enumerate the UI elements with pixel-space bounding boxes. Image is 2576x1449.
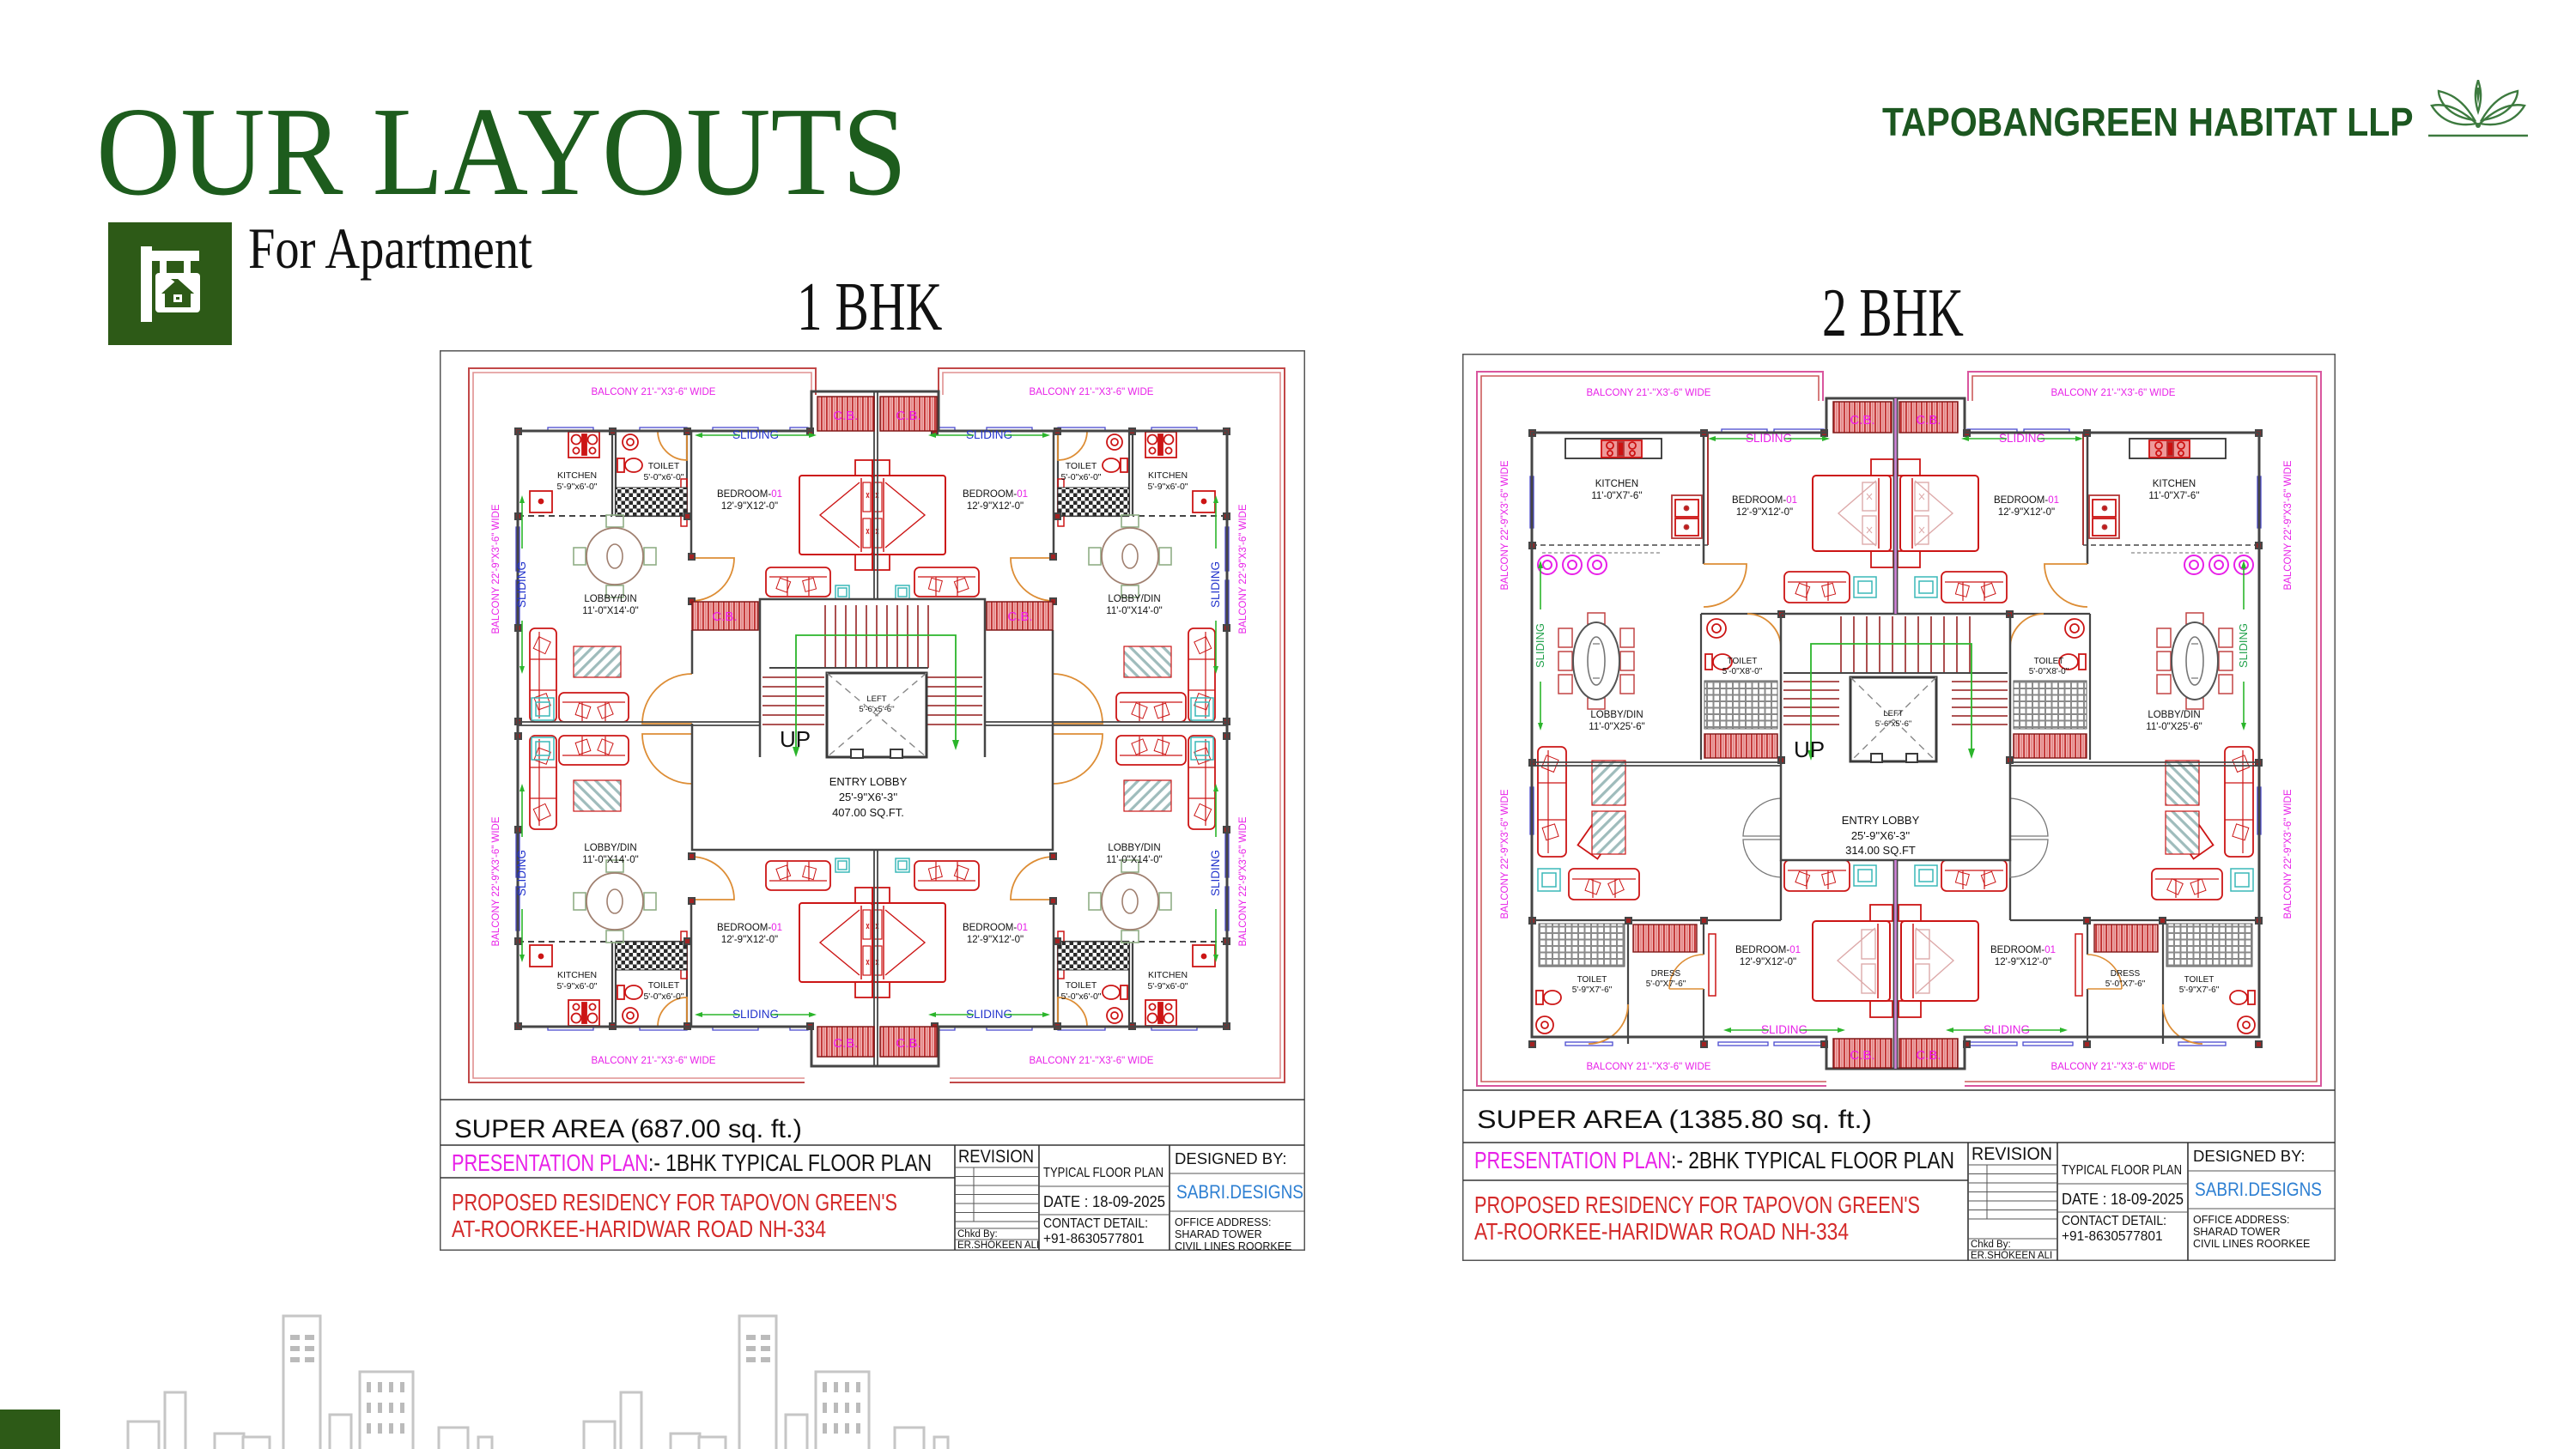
- svg-text:12'-9"X12'-0": 12'-9"X12'-0": [721, 501, 778, 512]
- svg-text:SLIDING: SLIDING: [2237, 623, 2250, 668]
- svg-text:SLIDING: SLIDING: [1209, 561, 1222, 608]
- svg-text:C.B.: C.B.: [1916, 1048, 1941, 1063]
- svg-text:KITCHEN: KITCHEN: [557, 470, 597, 481]
- svg-text:LOBBY/DIN: LOBBY/DIN: [584, 843, 636, 853]
- svg-text:DESIGNED BY:: DESIGNED BY:: [1175, 1149, 1287, 1167]
- svg-text:LOBBY/DIN: LOBBY/DIN: [1108, 843, 1160, 853]
- svg-text:ENTRY LOBBY: ENTRY LOBBY: [1842, 814, 1920, 827]
- svg-text:BALCONY 21'-''X3'-6" WIDE: BALCONY 21'-''X3'-6" WIDE: [2051, 388, 2176, 398]
- svg-text:5'-0"x6'-0": 5'-0"x6'-0": [1060, 991, 1101, 1002]
- svg-text:KITCHEN: KITCHEN: [1148, 470, 1188, 481]
- svg-text:PRESENTATION PLAN: PRESENTATION PLAN: [1474, 1147, 1671, 1173]
- svg-text:5'-9"x6'-0": 5'-9"x6'-0": [556, 981, 597, 991]
- svg-text:CIVIL LINES ROORKEE: CIVIL LINES ROORKEE: [1175, 1240, 1291, 1251]
- svg-text:5'-0"x6'-0": 5'-0"x6'-0": [1060, 472, 1101, 482]
- svg-text:TOILET: TOILET: [1066, 980, 1097, 991]
- svg-text:11'-0"X7'-6'': 11'-0"X7'-6'': [2148, 491, 2199, 501]
- svg-text:5'-9"x6'-0": 5'-9"x6'-0": [1147, 482, 1188, 492]
- svg-text:12'-9"X12'-0": 12'-9"X12'-0": [1998, 507, 2055, 518]
- svg-text:+91-8630577801: +91-8630577801: [1043, 1232, 1145, 1246]
- svg-text:TYPICAL FLOOR PLAN: TYPICAL FLOOR PLAN: [1043, 1166, 1163, 1180]
- svg-text:BALCONY 21'-''X3'-6" WIDE: BALCONY 21'-''X3'-6" WIDE: [2051, 1062, 2176, 1072]
- svg-text:BALCONY 22'-9"X3'-6" WIDE: BALCONY 22'-9"X3'-6" WIDE: [1238, 816, 1249, 946]
- svg-text:LEFT: LEFT: [866, 694, 886, 704]
- svg-text:PROPOSED RESIDENCY FOR TAPOVON: PROPOSED RESIDENCY FOR TAPOVON GREEN'S: [452, 1189, 897, 1216]
- svg-text:TOILET: TOILET: [1577, 975, 1607, 985]
- svg-text:11'-0"X14'-0": 11'-0"X14'-0": [1106, 855, 1162, 865]
- svg-text:DRESS: DRESS: [1651, 969, 1681, 979]
- svg-text:BEDROOM-01: BEDROOM-01: [717, 489, 782, 500]
- svg-text:ER.SHOKEEN ALI: ER.SHOKEEN ALI: [957, 1240, 1039, 1251]
- svg-text:KITCHEN: KITCHEN: [2153, 479, 2196, 489]
- svg-text:Chkd By:: Chkd By:: [1971, 1240, 2011, 1250]
- svg-text:5'-6'x5'-6'': 5'-6'x5'-6'': [859, 705, 894, 714]
- svg-text:11'-0"X14'-0": 11'-0"X14'-0": [582, 606, 638, 616]
- svg-text:BALCONY 21'-''X3'-6" WIDE: BALCONY 21'-''X3'-6" WIDE: [1030, 1056, 1154, 1066]
- svg-text:25'-9''X6'-3'': 25'-9''X6'-3'': [839, 791, 897, 803]
- svg-text:5'-0"X8'-0": 5'-0"X8'-0": [1722, 667, 1763, 676]
- svg-text:SLIDING: SLIDING: [1534, 623, 1546, 668]
- svg-text:C.B.: C.B.: [712, 609, 737, 624]
- svg-text:PRESENTATION PLAN: PRESENTATION PLAN: [452, 1149, 648, 1176]
- svg-text:12'-9"X12'-0": 12'-9"X12'-0": [1995, 957, 2051, 967]
- svg-text:5'-9"X7'-6": 5'-9"X7'-6": [1572, 985, 1613, 995]
- svg-text:12'-9"X12'-0": 12'-9"X12'-0": [1736, 507, 1793, 518]
- svg-text:C.B.: C.B.: [896, 409, 920, 423]
- svg-text:C.B.: C.B.: [896, 1036, 920, 1051]
- svg-text:LOBBY/DIN: LOBBY/DIN: [584, 594, 636, 604]
- svg-text:BEDROOM-01: BEDROOM-01: [1994, 495, 2059, 506]
- svg-text:5'-0"x6'-0": 5'-0"x6'-0": [643, 472, 683, 482]
- svg-text:BEDROOM-01: BEDROOM-01: [1732, 495, 1797, 506]
- svg-text:PROPOSED RESIDENCY FOR TAPOVON: PROPOSED RESIDENCY FOR TAPOVON GREEN'S: [1474, 1191, 1920, 1218]
- svg-text:BEDROOM-01: BEDROOM-01: [1990, 945, 2056, 955]
- svg-text:+91-8630577801: +91-8630577801: [2062, 1229, 2163, 1244]
- svg-text:BALCONY 22'-9"X3'-6" WIDE: BALCONY 22'-9"X3'-6" WIDE: [491, 816, 501, 946]
- svg-text:SABRI.DESIGNS: SABRI.DESIGNS: [2195, 1179, 2322, 1200]
- svg-text:SHARAD TOWER: SHARAD TOWER: [2193, 1226, 2281, 1238]
- svg-text:DESIGNED BY:: DESIGNED BY:: [2193, 1147, 2306, 1165]
- svg-text:ER.SHOKEEN ALI: ER.SHOKEEN ALI: [1971, 1251, 2052, 1261]
- svg-text:AT-ROORKEE-HARIDWAR ROAD NH-33: AT-ROORKEE-HARIDWAR ROAD NH-334: [1474, 1218, 1849, 1245]
- svg-text:BALCONY 21'-''X3'-6" WIDE: BALCONY 21'-''X3'-6" WIDE: [1587, 388, 1711, 398]
- svg-text:11'-0"X7'-6'': 11'-0"X7'-6'': [1591, 491, 1642, 501]
- svg-text:SLIDING: SLIDING: [515, 561, 528, 608]
- svg-text:TYPICAL FLOOR PLAN: TYPICAL FLOOR PLAN: [2062, 1163, 2182, 1178]
- svg-text:C.B.: C.B.: [1007, 609, 1032, 624]
- svg-text:SABRI.DESIGNS: SABRI.DESIGNS: [1176, 1181, 1303, 1203]
- svg-text:5'-9"X7'-6": 5'-9"X7'-6": [2179, 985, 2220, 995]
- svg-text:CIVIL LINES ROORKEE: CIVIL LINES ROORKEE: [2193, 1238, 2310, 1250]
- svg-text:SHARAD TOWER: SHARAD TOWER: [1175, 1228, 1262, 1240]
- svg-text:KITCHEN: KITCHEN: [557, 970, 597, 980]
- svg-text:UP: UP: [780, 726, 811, 752]
- svg-text:25'-9''X6'-3'': 25'-9''X6'-3'': [1851, 829, 1910, 842]
- svg-text:DATE : 18-09-2025: DATE : 18-09-2025: [2062, 1190, 2184, 1208]
- svg-text:DRESS: DRESS: [2111, 969, 2141, 979]
- svg-text:12'-9"X12'-0": 12'-9"X12'-0": [1740, 957, 1796, 967]
- svg-text:BALCONY 22'-9"X3'-6" WIDE: BALCONY 22'-9"X3'-6" WIDE: [1238, 504, 1249, 634]
- svg-text:UP: UP: [1794, 737, 1825, 762]
- svg-text:DATE : 18-09-2025: DATE : 18-09-2025: [1043, 1192, 1165, 1210]
- svg-text:11'-0"X14'-0": 11'-0"X14'-0": [1106, 606, 1162, 616]
- svg-text:CONTACT DETAIL:: CONTACT DETAIL:: [1043, 1216, 1148, 1231]
- svg-text:BALCONY 21'-''X3'-6" WIDE: BALCONY 21'-''X3'-6" WIDE: [592, 1056, 716, 1066]
- svg-text:TOILET: TOILET: [1066, 461, 1097, 471]
- svg-text:12'-9"X12'-0": 12'-9"X12'-0": [967, 501, 1024, 512]
- svg-text:SUPER AREA (687.00 sq. ft.): SUPER AREA (687.00 sq. ft.): [454, 1115, 802, 1143]
- svg-text:5'-9"x6'-0": 5'-9"x6'-0": [556, 482, 597, 492]
- svg-text:AT-ROORKEE-HARIDWAR ROAD NH-33: AT-ROORKEE-HARIDWAR ROAD NH-334: [452, 1216, 826, 1242]
- svg-text:BALCONY 21'-''X3'-6" WIDE: BALCONY 21'-''X3'-6" WIDE: [1030, 387, 1154, 397]
- svg-text::- 1BHK TYPICAL FLOOR PLAN: :- 1BHK TYPICAL FLOOR PLAN: [648, 1149, 932, 1176]
- svg-text:SUPER AREA (1385.80 sq. ft.): SUPER AREA (1385.80 sq. ft.): [1477, 1106, 1872, 1134]
- svg-text:314.00 SQ.FT: 314.00 SQ.FT: [1845, 844, 1916, 857]
- svg-text:C.B.: C.B.: [833, 409, 858, 423]
- svg-text:5'-9"x6'-0": 5'-9"x6'-0": [1147, 981, 1188, 991]
- svg-text:LOBBY/DIN: LOBBY/DIN: [1108, 594, 1160, 604]
- svg-text:TOILET: TOILET: [648, 461, 680, 471]
- svg-text:SLIDING: SLIDING: [1209, 850, 1222, 896]
- svg-text:REVISION: REVISION: [1971, 1144, 2052, 1164]
- svg-text:TOILET: TOILET: [2034, 657, 2064, 666]
- svg-text:BALCONY 22'-9"X3'-6" WIDE: BALCONY 22'-9"X3'-6" WIDE: [2283, 460, 2293, 590]
- svg-text:BALCONY 22'-9"X3'-6" WIDE: BALCONY 22'-9"X3'-6" WIDE: [2283, 789, 2293, 919]
- svg-text:LEFT: LEFT: [1883, 709, 1903, 718]
- svg-text:TOILET: TOILET: [1728, 657, 1758, 666]
- svg-text:CONTACT DETAIL:: CONTACT DETAIL:: [2062, 1214, 2166, 1228]
- svg-text:LOBBY/DIN: LOBBY/DIN: [2148, 710, 2200, 720]
- svg-text:C.B.: C.B.: [1850, 1048, 1874, 1063]
- svg-text:OFFICE ADDRESS:: OFFICE ADDRESS:: [1175, 1216, 1272, 1228]
- svg-text:TOILET: TOILET: [2184, 975, 2215, 985]
- svg-text:5'-0"x6'-0": 5'-0"x6'-0": [643, 991, 683, 1002]
- svg-text:11'-0"X25'-6": 11'-0"X25'-6": [2146, 722, 2202, 732]
- svg-text:BEDROOM-01: BEDROOM-01: [717, 923, 782, 933]
- svg-text:5'-0"X7'-6": 5'-0"X7'-6": [1646, 979, 1686, 989]
- svg-text:11'-0"X25'-6": 11'-0"X25'-6": [1589, 722, 1644, 732]
- svg-text:ENTRY LOBBY: ENTRY LOBBY: [829, 775, 908, 788]
- svg-text:BEDROOM-01: BEDROOM-01: [963, 923, 1028, 933]
- svg-text:12'-9"X12'-0": 12'-9"X12'-0": [721, 935, 778, 945]
- svg-text:11'-0"X14'-0": 11'-0"X14'-0": [582, 855, 638, 865]
- svg-text:BALCONY 21'-''X3'-6" WIDE: BALCONY 21'-''X3'-6" WIDE: [592, 387, 716, 397]
- svg-text:KITCHEN: KITCHEN: [1148, 970, 1188, 980]
- svg-text:BEDROOM-01: BEDROOM-01: [963, 489, 1028, 500]
- svg-text:5'-0"X7'-6": 5'-0"X7'-6": [2105, 979, 2146, 989]
- svg-text::- 2BHK TYPICAL FLOOR PLAN: :- 2BHK TYPICAL FLOOR PLAN: [1671, 1147, 1954, 1173]
- svg-text:TOILET: TOILET: [648, 980, 680, 991]
- svg-text:OFFICE ADDRESS:: OFFICE ADDRESS:: [2193, 1214, 2290, 1226]
- svg-text:BALCONY 22'-9"X3'-6" WIDE: BALCONY 22'-9"X3'-6" WIDE: [491, 504, 501, 634]
- svg-text:BALCONY 22'-9"X3'-6" WIDE: BALCONY 22'-9"X3'-6" WIDE: [1500, 460, 1510, 590]
- svg-text:BALCONY 22'-9"X3'-6" WIDE: BALCONY 22'-9"X3'-6" WIDE: [1500, 789, 1510, 919]
- svg-text:5'-0"X8'-0": 5'-0"X8'-0": [2029, 667, 2069, 676]
- svg-text:C.B.: C.B.: [833, 1036, 858, 1051]
- svg-text:REVISION: REVISION: [958, 1147, 1034, 1167]
- svg-text:KITCHEN: KITCHEN: [1595, 479, 1638, 489]
- svg-text:C.B.: C.B.: [1850, 413, 1874, 427]
- svg-text:SLIDING: SLIDING: [515, 850, 528, 896]
- svg-text:BALCONY 21'-''X3'-6" WIDE: BALCONY 21'-''X3'-6" WIDE: [1587, 1062, 1711, 1072]
- svg-text:407.00 SQ.FT.: 407.00 SQ.FT.: [832, 806, 904, 819]
- svg-text:C.B.: C.B.: [1916, 413, 1941, 427]
- svg-text:5'-6"x5'-6": 5'-6"x5'-6": [1875, 719, 1912, 729]
- svg-text:12'-9"X12'-0": 12'-9"X12'-0": [967, 935, 1024, 945]
- svg-text:BEDROOM-01: BEDROOM-01: [1735, 945, 1801, 955]
- svg-text:Chkd By:: Chkd By:: [957, 1229, 998, 1240]
- svg-text:LOBBY/DIN: LOBBY/DIN: [1590, 710, 1643, 720]
